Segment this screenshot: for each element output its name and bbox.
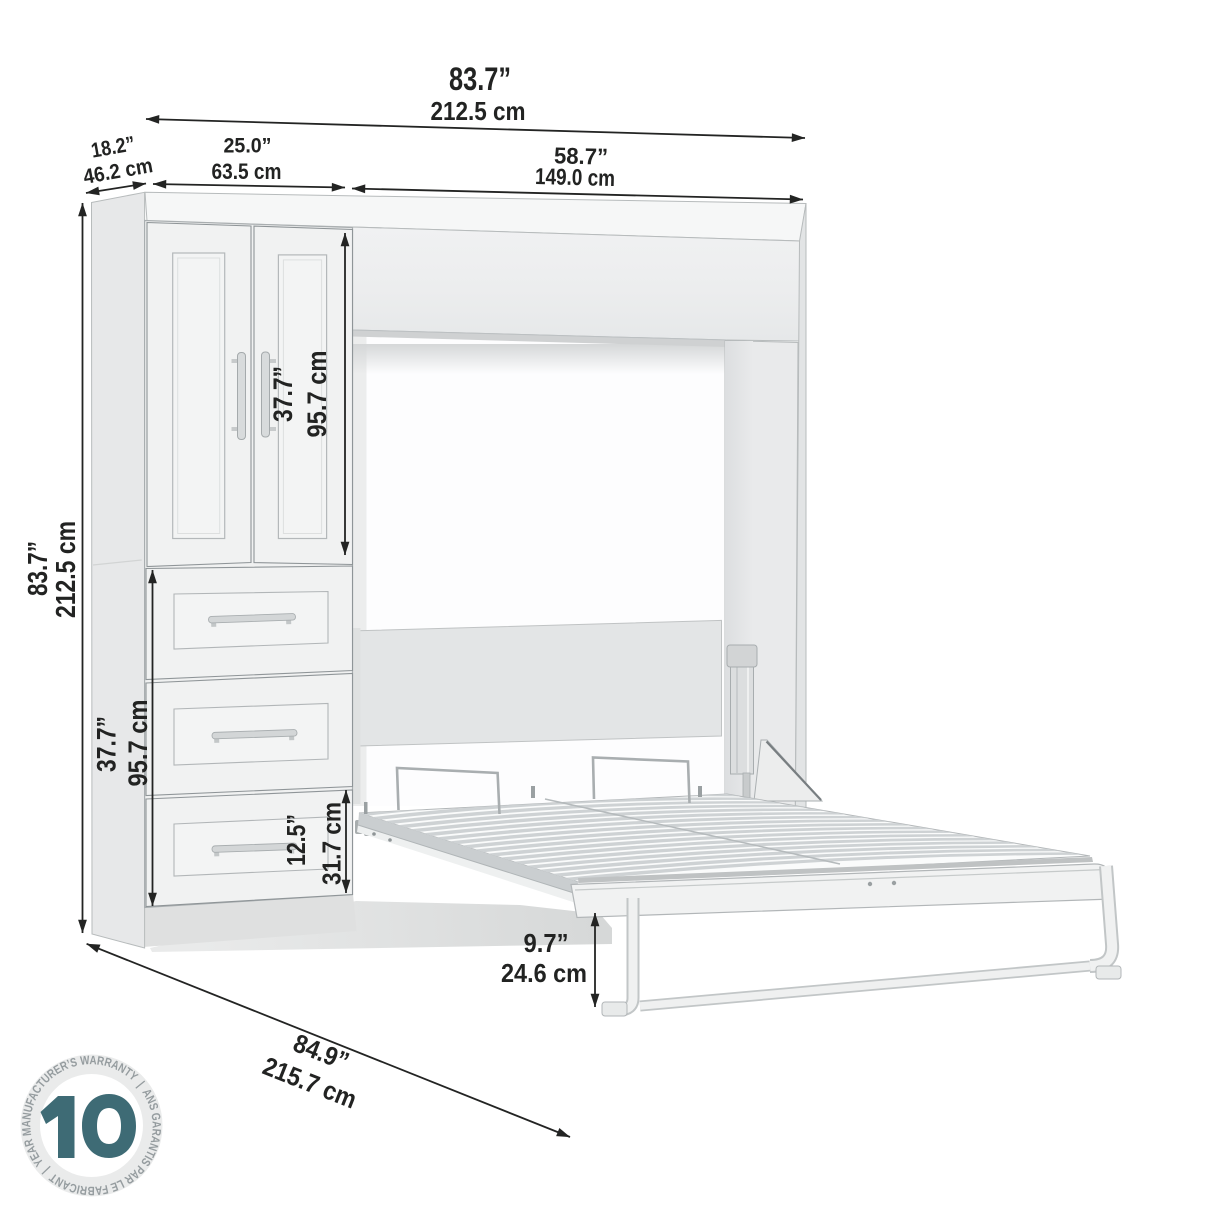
svg-text:212.5 cm: 212.5 cm xyxy=(50,521,81,618)
svg-text:12.5”: 12.5” xyxy=(281,814,311,866)
svg-text:25.0”: 25.0” xyxy=(224,135,272,158)
svg-text:212.5 cm: 212.5 cm xyxy=(431,96,526,126)
svg-text:24.6 cm: 24.6 cm xyxy=(501,958,587,988)
svg-text:9.7”: 9.7” xyxy=(524,928,569,958)
svg-text:83.7”: 83.7” xyxy=(449,61,511,97)
svg-text:31.7 cm: 31.7 cm xyxy=(317,802,347,885)
svg-text:63.5 cm: 63.5 cm xyxy=(212,159,282,184)
svg-text:149.0 cm: 149.0 cm xyxy=(535,163,616,191)
svg-text:37.7”: 37.7” xyxy=(268,366,298,422)
svg-text:95.7 cm: 95.7 cm xyxy=(123,700,153,787)
svg-text:95.7 cm: 95.7 cm xyxy=(302,351,332,438)
svg-text:83.7”: 83.7” xyxy=(22,541,53,596)
svg-text:37.7”: 37.7” xyxy=(92,716,122,772)
